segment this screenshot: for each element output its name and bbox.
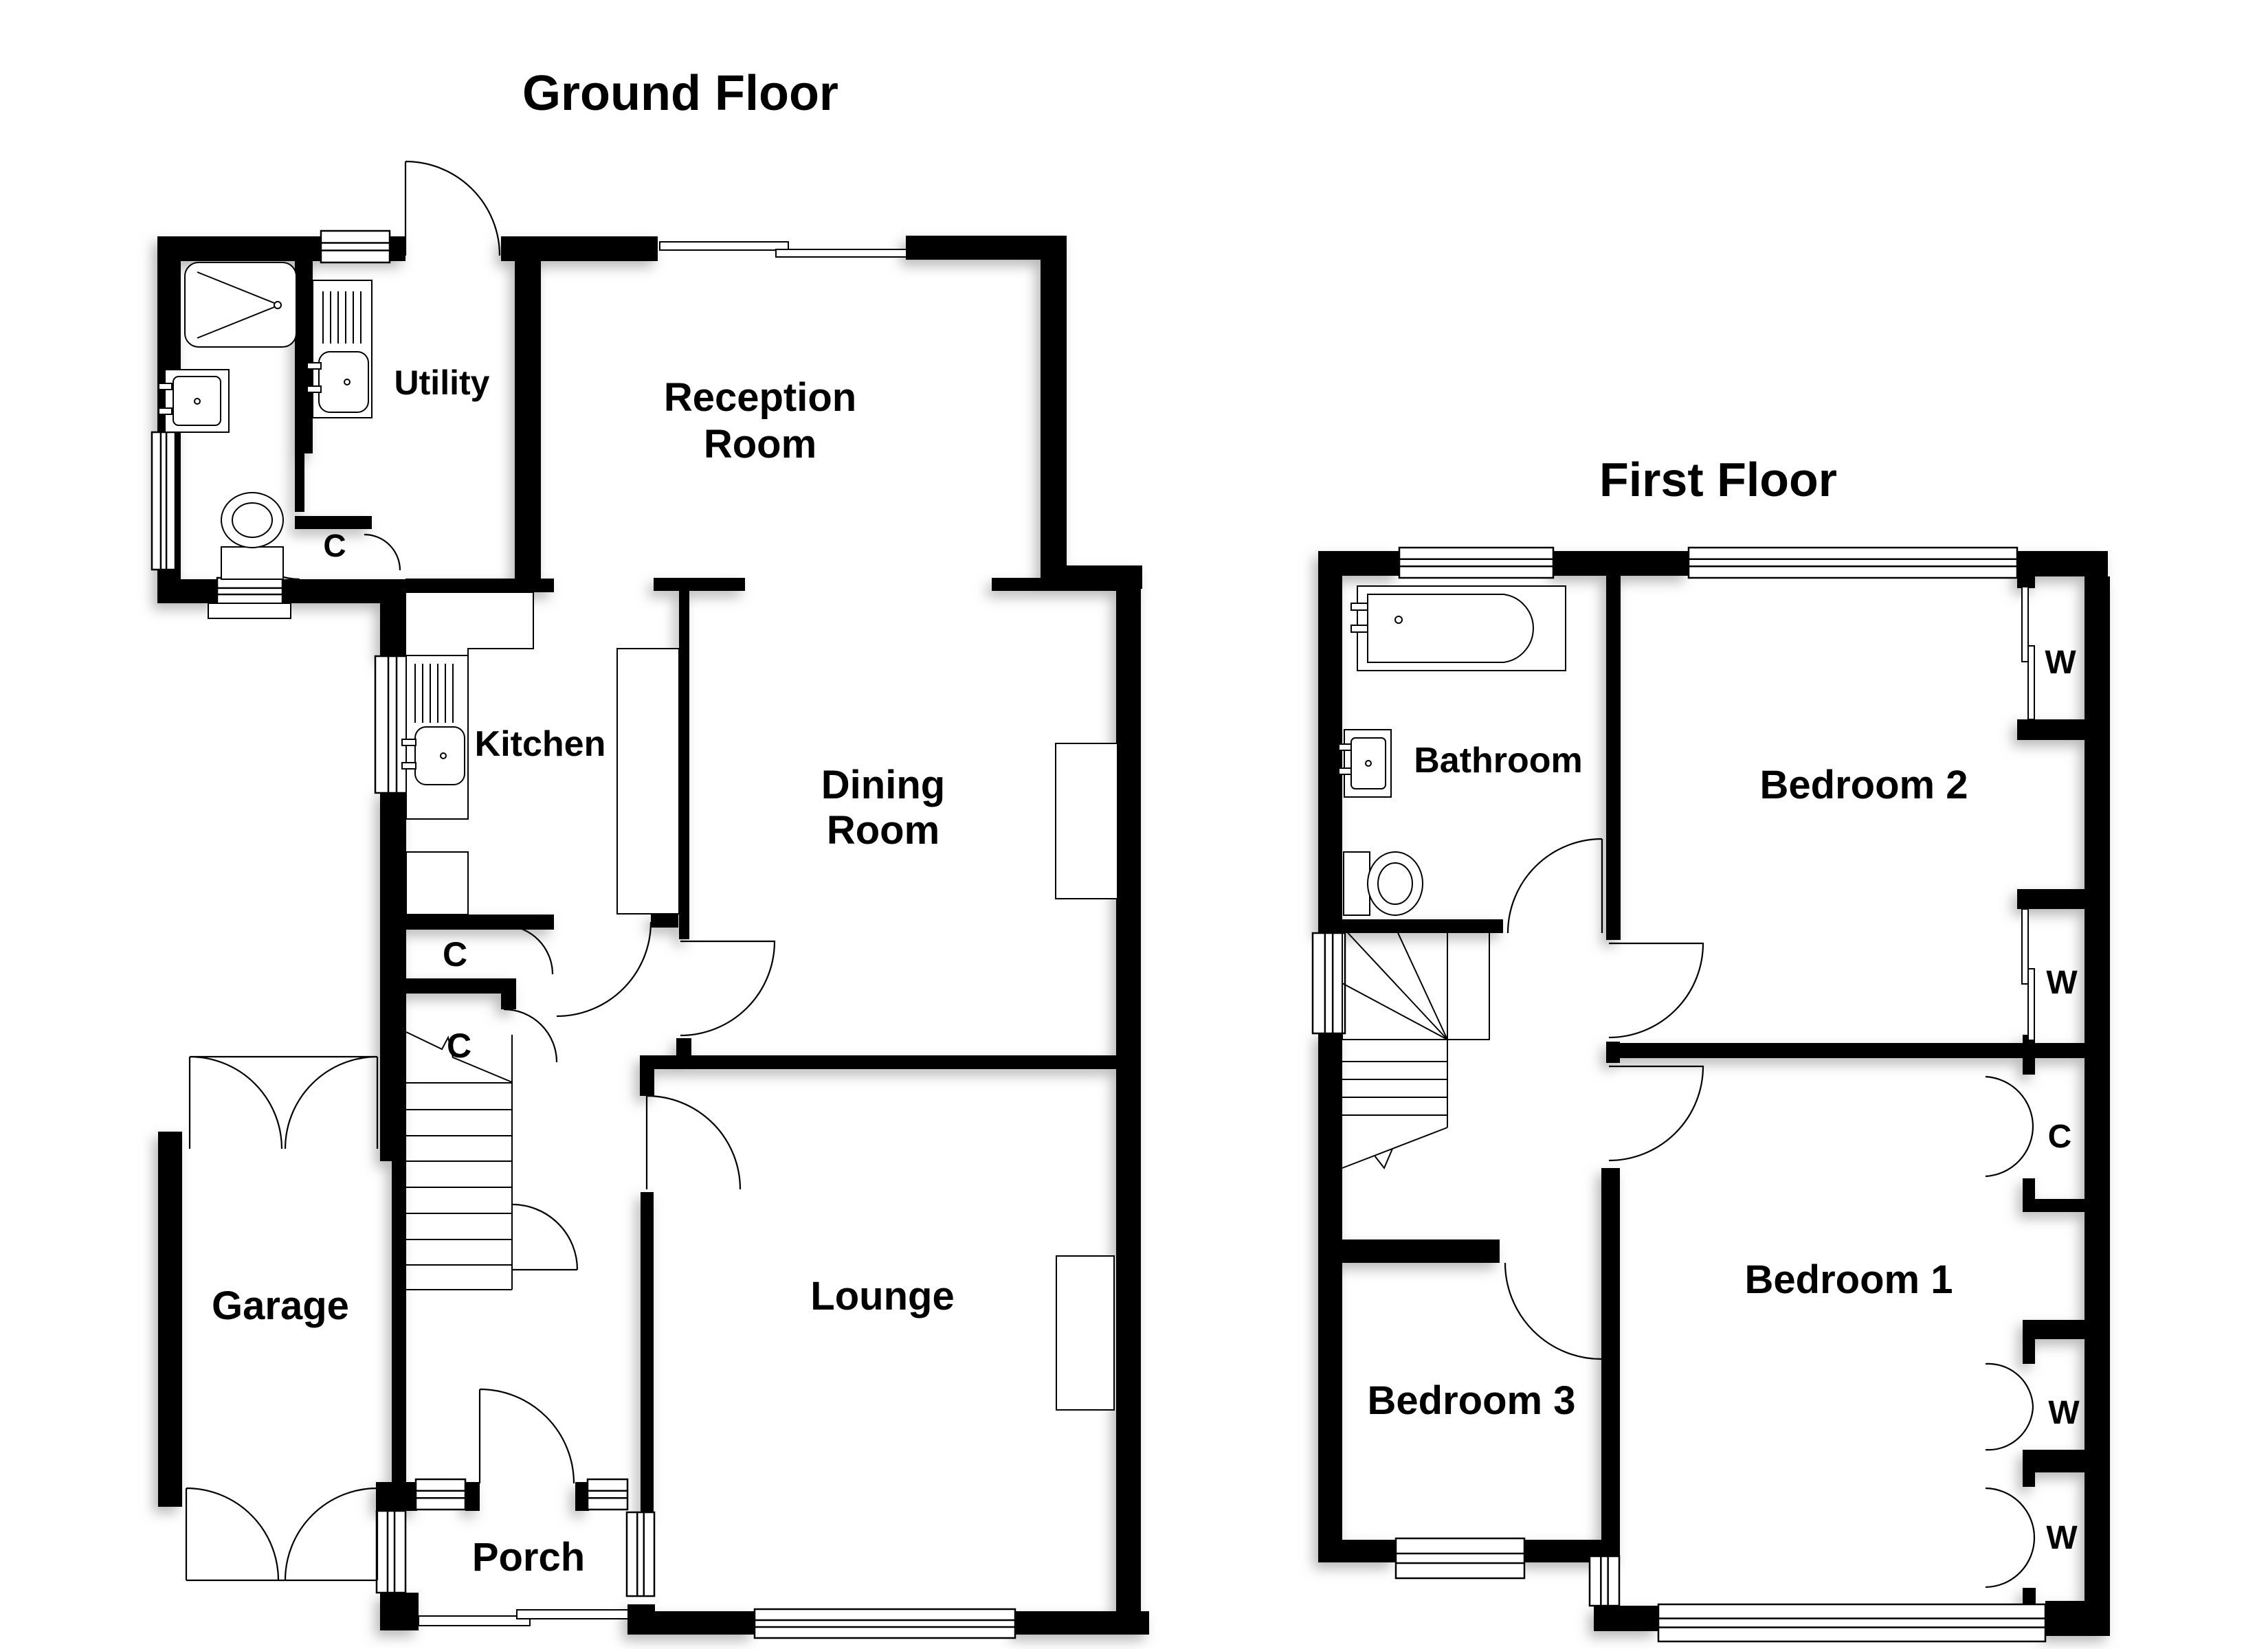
svg-text:Bedroom 3: Bedroom 3 (1368, 1378, 1576, 1423)
svg-text:W: W (2048, 1395, 2080, 1431)
svg-text:First Floor: First Floor (1599, 453, 1837, 506)
svg-text:Lounge: Lounge (810, 1274, 954, 1319)
svg-text:Reception: Reception (664, 375, 856, 420)
svg-text:Ground Floor: Ground Floor (522, 66, 838, 121)
svg-text:C: C (443, 935, 467, 974)
svg-text:Kitchen: Kitchen (475, 724, 606, 764)
svg-text:Bedroom 1: Bedroom 1 (1745, 1257, 1953, 1302)
svg-text:Bathroom: Bathroom (1414, 741, 1583, 781)
svg-text:C: C (447, 1027, 471, 1065)
svg-text:C: C (323, 528, 346, 563)
svg-text:W: W (2046, 1520, 2078, 1556)
svg-text:Room: Room (704, 422, 816, 467)
svg-text:W: W (2045, 644, 2076, 681)
svg-text:Utility: Utility (394, 363, 490, 402)
svg-text:Porch: Porch (472, 1535, 585, 1580)
svg-text:Bedroom 2: Bedroom 2 (1760, 763, 1968, 807)
svg-text:Dining: Dining (821, 763, 945, 807)
svg-text:W: W (2046, 965, 2078, 1001)
svg-text:Garage: Garage (212, 1283, 349, 1328)
svg-text:C: C (2048, 1119, 2072, 1155)
svg-text:Room: Room (827, 808, 940, 853)
